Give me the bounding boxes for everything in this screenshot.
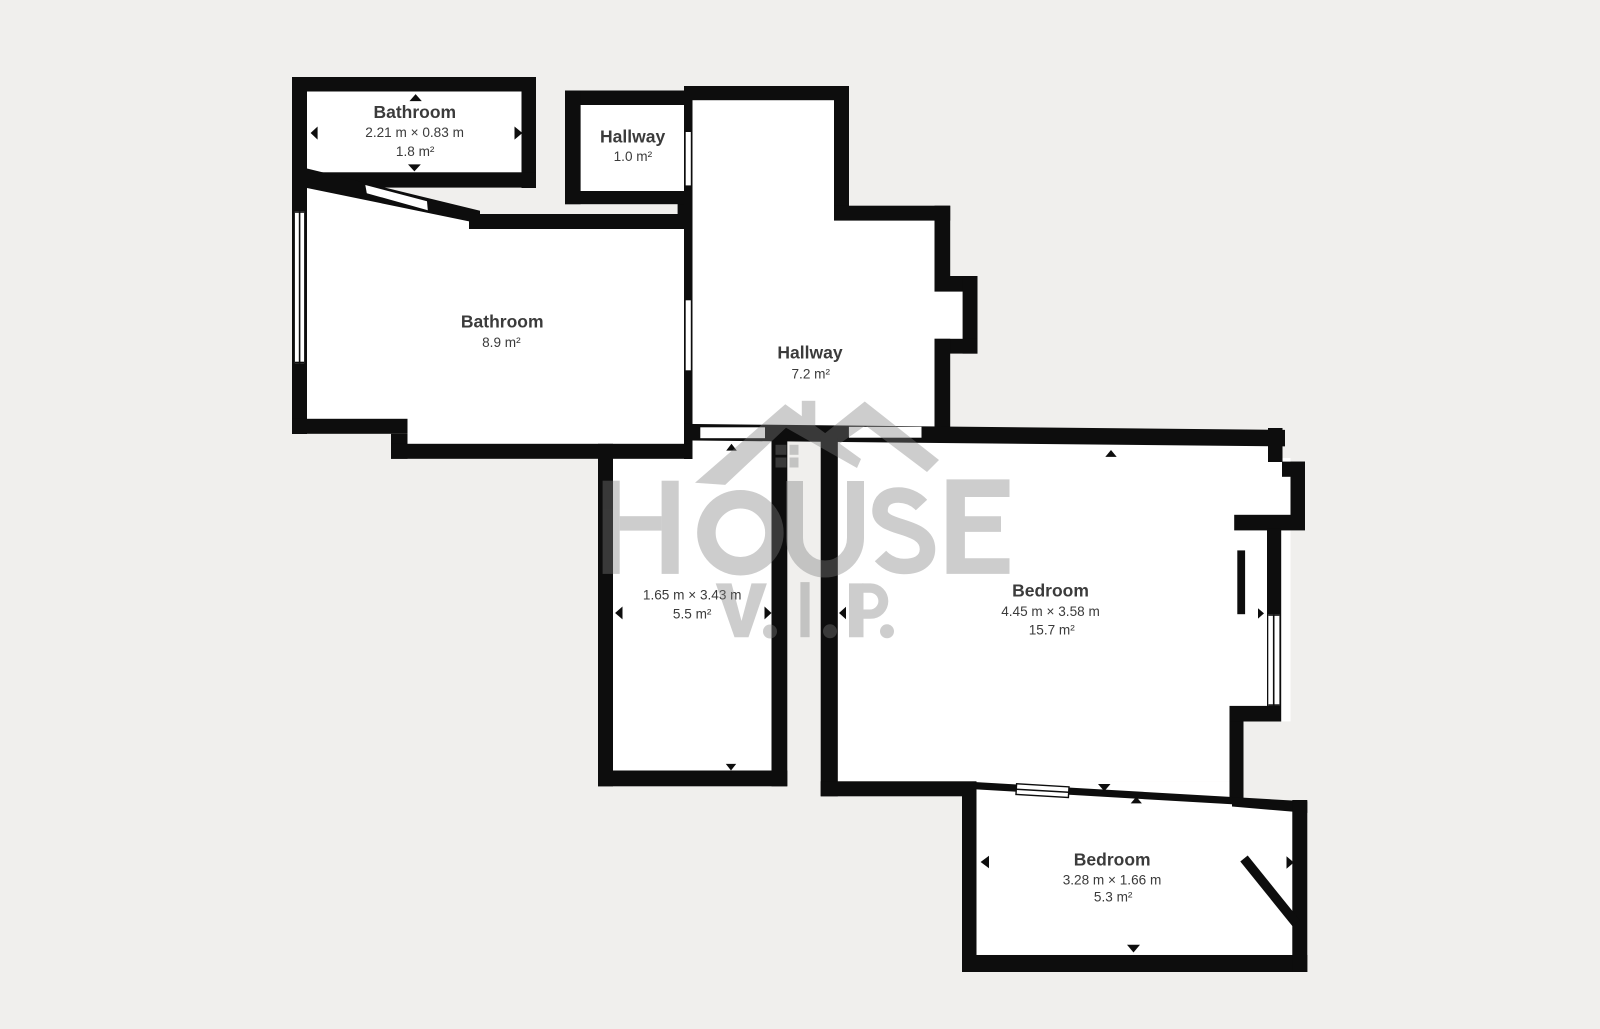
svg-text:2.21 m × 0.83 m: 2.21 m × 0.83 m bbox=[365, 125, 464, 140]
svg-text:1.0 m²: 1.0 m² bbox=[614, 149, 653, 164]
svg-text:5.3 m²: 5.3 m² bbox=[1094, 890, 1133, 905]
svg-text:5.5 m²: 5.5 m² bbox=[673, 607, 712, 622]
svg-text:3.28 m × 1.66 m: 3.28 m × 1.66 m bbox=[1063, 873, 1162, 888]
svg-text:4.45 m × 3.58 m: 4.45 m × 3.58 m bbox=[1001, 604, 1100, 619]
svg-text:7.2 m²: 7.2 m² bbox=[791, 367, 830, 382]
svg-text:1.8 m²: 1.8 m² bbox=[396, 144, 435, 159]
svg-text:Bathroom: Bathroom bbox=[373, 102, 456, 122]
svg-text:Bathroom: Bathroom bbox=[461, 312, 544, 332]
svg-text:Bedroom: Bedroom bbox=[1074, 850, 1151, 870]
svg-text:Bedroom: Bedroom bbox=[1012, 581, 1089, 601]
svg-text:Hallway: Hallway bbox=[777, 343, 842, 363]
svg-text:8.9 m²: 8.9 m² bbox=[482, 335, 521, 350]
svg-text:15.7 m²: 15.7 m² bbox=[1029, 622, 1076, 637]
svg-text:Hallway: Hallway bbox=[600, 126, 665, 146]
